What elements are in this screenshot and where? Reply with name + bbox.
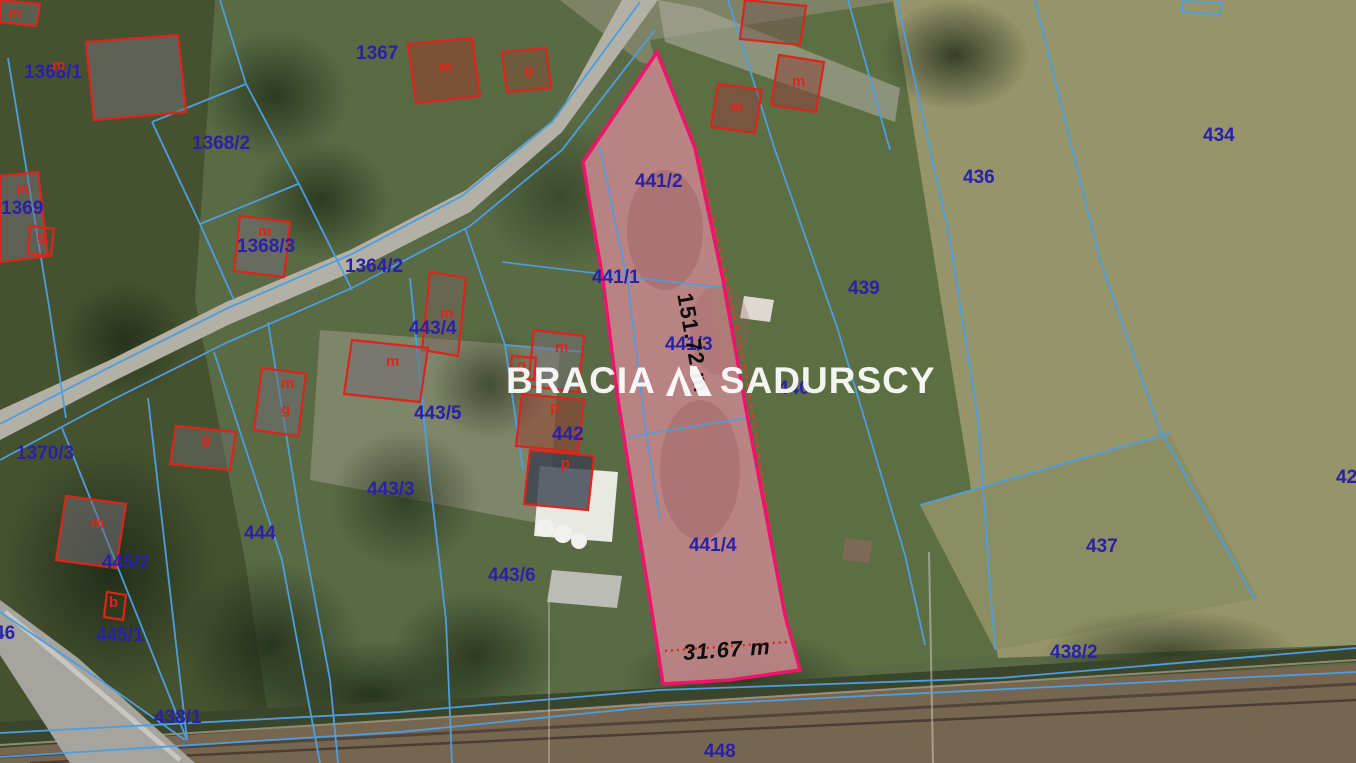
building-label: b <box>109 595 118 610</box>
gray-outbuilding <box>547 570 622 608</box>
building-label: m <box>555 340 568 355</box>
logo-slab-shape <box>690 366 712 396</box>
parcel-label-1369: 1369 <box>1 199 43 218</box>
building-label: p <box>550 400 559 415</box>
storage-tank <box>571 533 587 549</box>
parcel-label-445-1: 445/1 <box>96 626 144 645</box>
building-label: m <box>258 224 271 239</box>
parcel-label-444: 444 <box>244 524 276 543</box>
parcel-label-1370-3: 1370/3 <box>16 444 74 463</box>
parcel-label-443-3: 443/3 <box>367 480 415 499</box>
map-viewport[interactable]: 1368/1 1367 1368/2 1369 1368/3 1364/2 44… <box>0 0 1356 763</box>
watermark-brand-right: SADURSCY <box>720 360 936 402</box>
storage-tank <box>536 519 554 537</box>
storage-tank <box>554 525 572 543</box>
building-label: g <box>37 229 46 244</box>
building-label: g <box>201 432 210 447</box>
parcel-label-441-4: 441/4 <box>689 536 737 555</box>
parcel-label-442: 442 <box>552 425 584 444</box>
building-label: m <box>440 306 453 321</box>
watermark-brand-left: BRACIA <box>506 360 656 402</box>
building-label: m <box>792 74 805 89</box>
parcel-label-1364-2: 1364/2 <box>345 257 403 276</box>
parcel-label-439: 439 <box>848 279 880 298</box>
parcel-label-1367: 1367 <box>356 44 398 63</box>
building-label: m <box>91 516 104 531</box>
parcel-label-448: 448 <box>704 742 736 761</box>
building-label: m <box>8 6 21 21</box>
brand-logo-icon <box>666 366 710 396</box>
building-label: m <box>16 182 29 197</box>
watermark: BRACIA SADURSCY <box>506 360 936 402</box>
building-label: m <box>439 60 452 75</box>
parcel-label-434: 434 <box>1203 126 1235 145</box>
parcel-label-438-1: 438/1 <box>154 708 202 727</box>
parcel-label-437: 437 <box>1086 537 1118 556</box>
parcel-label-436: 436 <box>963 168 995 187</box>
building-label: m <box>386 354 399 369</box>
parcel-label-441-1: 441/1 <box>592 268 640 287</box>
building-label: p <box>561 456 570 471</box>
parcel-label-446: 46 <box>0 624 15 643</box>
parcel-label-443-5: 443/5 <box>414 404 462 423</box>
parcel-label-445-2: 445/2 <box>102 553 150 572</box>
brown-shed <box>842 538 872 563</box>
building-label: g <box>524 63 533 78</box>
parcel-label-441-2: 441/2 <box>635 172 683 191</box>
parcel-label-438-2: 438/2 <box>1050 643 1098 662</box>
building-label: m <box>281 376 294 391</box>
parcel-label-443-6: 443/6 <box>488 566 536 585</box>
parcel-label-1368-2: 1368/2 <box>192 134 250 153</box>
logo-caret-shape <box>666 366 692 396</box>
building-label: g <box>281 402 290 417</box>
parcel-label-42-cut: 42 <box>1336 468 1356 487</box>
building-label: m <box>730 100 743 115</box>
building-label: m <box>52 58 65 73</box>
